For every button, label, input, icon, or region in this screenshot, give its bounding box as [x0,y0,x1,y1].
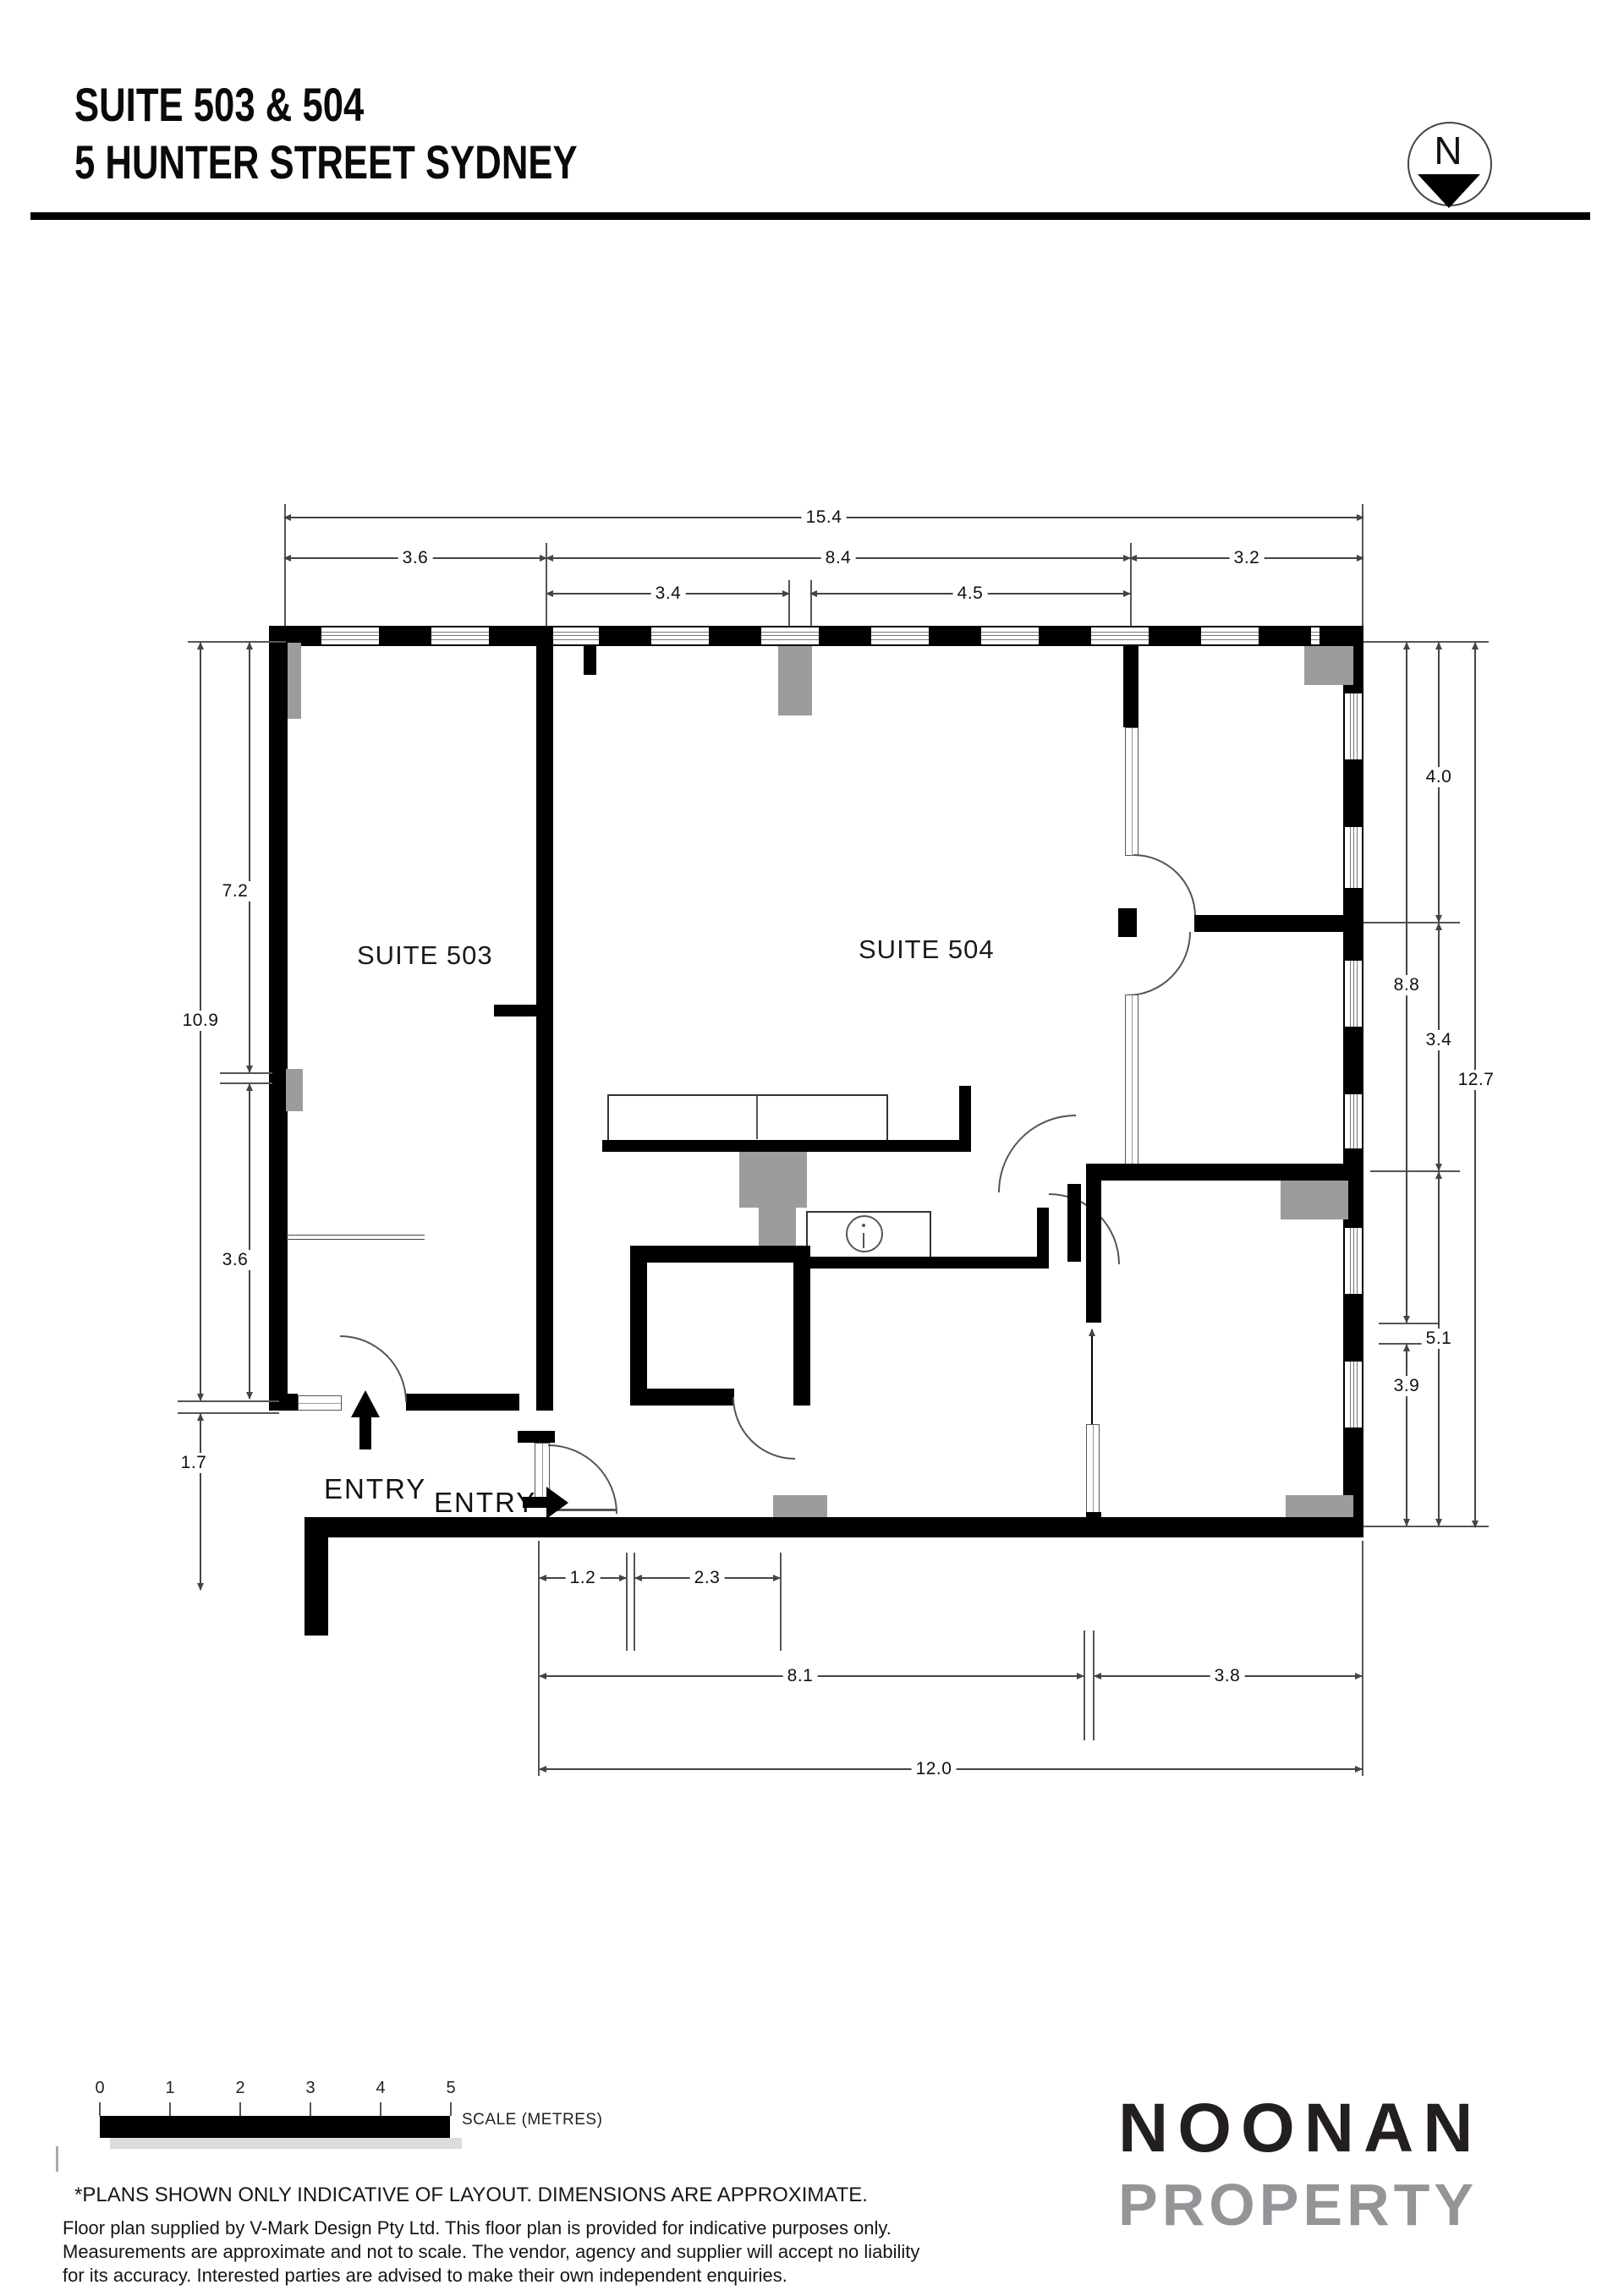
wall-wc-south [630,1389,734,1406]
scale-bar [100,2116,450,2138]
dim-label: 3.4 [651,584,686,604]
column-left-top [288,643,301,719]
dim-label: 15.4 [802,507,847,528]
ext-line [1363,922,1460,923]
dim-label: 2.3 [690,1568,725,1588]
north-letter: N [1434,128,1462,173]
ext-line [634,1553,635,1651]
wall-left [269,626,288,1411]
wall-right-junction-block [1343,888,1363,947]
ext-line [788,580,790,626]
wall-bench-stub [959,1086,971,1152]
scale-tick-mark [99,2102,101,2116]
dim-label: 1.7 [177,1453,211,1473]
wall-meeting-south [1194,915,1343,932]
logo-property: PROPERTY [1118,2175,1478,2234]
column-left-mid [286,1069,303,1111]
dim-label: 3.8 [1210,1666,1245,1686]
wall-stub-top [584,646,596,675]
window-suite503 [298,1395,342,1411]
stray-mark [56,2146,58,2172]
disclaimer-line3: for its accuracy. Interested parties are… [63,2265,787,2287]
dim-label: 3.2 [1230,548,1265,568]
column-top-right [1304,646,1353,685]
glazed-panel-room2 [1086,1424,1100,1514]
scale-tick: 0 [95,2079,104,2098]
column-core-upper [739,1152,807,1208]
ext-line [626,1553,628,1651]
wall-vestibule [518,1431,555,1443]
dim-label: 10.9 [178,1011,223,1031]
column-bottom-center [773,1495,827,1517]
dim-label: 3.4 [1422,1030,1457,1050]
scale-tick-mark [450,2102,452,2116]
ext-line [1362,504,1363,626]
scale-tick: 3 [305,2079,315,2098]
entry-arrow-right-shaft [523,1497,546,1508]
dim-label: 8.8 [1390,975,1424,995]
ext-line [1363,1526,1489,1527]
wall-room2-west-lower [1086,1512,1101,1537]
wall-wc-east [793,1246,810,1406]
dim-label: 3.6 [218,1250,253,1270]
wall-suite503-bottom [269,1394,298,1411]
wall-wc-north [630,1246,810,1263]
ext-line [178,1412,279,1414]
dim-line [1406,1345,1407,1526]
ext-line [1362,1541,1363,1776]
wall-wc-west [630,1246,647,1406]
dim-label: 12.0 [912,1759,957,1779]
dim-line [200,1414,201,1590]
dim-line [249,1084,250,1399]
scale-tick-mark [169,2102,171,2116]
scale-tick-mark [239,2102,241,2116]
wall-bottom [304,1517,1363,1537]
door-arc-corridor-west [998,1115,1076,1192]
glazed-partition-lower [1125,995,1138,1165]
suite503-label: SUITE 503 [357,940,493,971]
disclaimer-line1: Floor plan supplied by V-Mark Design Pty… [63,2217,892,2239]
dim-label: 12.7 [1454,1070,1499,1090]
dim-label: 5.1 [1422,1329,1457,1349]
door-arc-wc [732,1397,795,1460]
scale-tick: 5 [446,2079,455,2098]
entry-arrow-up-icon [351,1390,380,1417]
sink-symbol-icon [846,1215,883,1252]
scale-bar-shadow [110,2138,462,2149]
wall-corridor-stub [1067,1184,1081,1262]
scale-tick: 1 [165,2079,174,2098]
column-top-center [778,646,812,715]
column-room2-corner [1281,1181,1348,1219]
door-arc-corridor-east [1049,1193,1120,1264]
entry-arrow-up-shaft [359,1417,371,1449]
wall-room2-west-upper [1086,1164,1101,1323]
wall-below-bench [602,1140,971,1152]
ext-line [1093,1630,1095,1740]
door-arc-meeting-upper [1133,854,1196,917]
dim-label: 3.6 [398,548,433,568]
floor-plan-page: SUITE 503 & 504 5 HUNTER STREET SYDNEY N… [0,0,1624,2296]
sink-symbol-dot [862,1224,865,1227]
dim-label: 1.2 [566,1568,601,1588]
wall-kitchen-south [806,1257,1048,1269]
dim-label: 7.2 [218,881,253,901]
wall-suite503-bottom [406,1394,519,1411]
dim-label: 4.5 [953,584,988,604]
bench-counter [607,1094,888,1142]
wall-right [1343,626,1363,1537]
ext-line [1370,1170,1460,1172]
logo-noonan: NOONAN [1118,2094,1482,2163]
dim-line [249,643,250,1072]
dim-label: 8.4 [821,548,856,568]
disclaimer-line2: Measurements are approximate and not to … [63,2241,919,2263]
ext-line [284,504,286,626]
scale-tick: 4 [376,2079,385,2098]
dim-label: 8.1 [783,1666,818,1686]
scale-tick-mark [380,2102,381,2116]
dim-label: 4.0 [1422,767,1457,787]
wall-meeting-stub [1123,646,1138,727]
entry-arrow-right-icon [546,1487,568,1519]
scale-bar-label: SCALE (METRES) [462,2111,602,2129]
bench-divider-line [756,1095,758,1139]
dim-line [1438,1172,1440,1526]
sink-symbol-stem [863,1233,864,1248]
dim-label: 3.9 [1390,1376,1424,1396]
ext-line [810,580,812,626]
wall-suite-divider [536,626,553,1411]
entry-label-1: ENTRY [324,1473,426,1505]
page-title-line1: SUITE 503 & 504 [74,81,364,129]
wall-divider-stub [494,1005,536,1016]
ext-line [1084,1630,1085,1740]
wall-bottom-left-return [304,1517,328,1636]
north-arrow-icon [1418,174,1480,208]
column-bottom-right [1286,1495,1353,1517]
scale-tick: 2 [235,2079,244,2098]
wall-top [269,626,1363,646]
ext-line [1363,641,1489,643]
ext-line [780,1553,782,1651]
suite504-label: SUITE 504 [859,934,995,965]
entry-label-2: ENTRY [434,1487,536,1519]
door-arc-meeting-lower [1127,932,1191,996]
partition-line-suite503 [286,1235,425,1240]
header-rule [30,212,1590,220]
ext-line [178,1400,279,1402]
wall-kitchen-stub [1037,1208,1049,1269]
glazed-partition-upper [1125,727,1138,856]
page-title-line2: 5 HUNTER STREET SYDNEY [74,139,578,186]
wall-room2-north [1086,1164,1363,1181]
scale-tick-mark [310,2102,311,2116]
plans-note: *PLANS SHOWN ONLY INDICATIVE OF LAYOUT. … [74,2184,868,2207]
